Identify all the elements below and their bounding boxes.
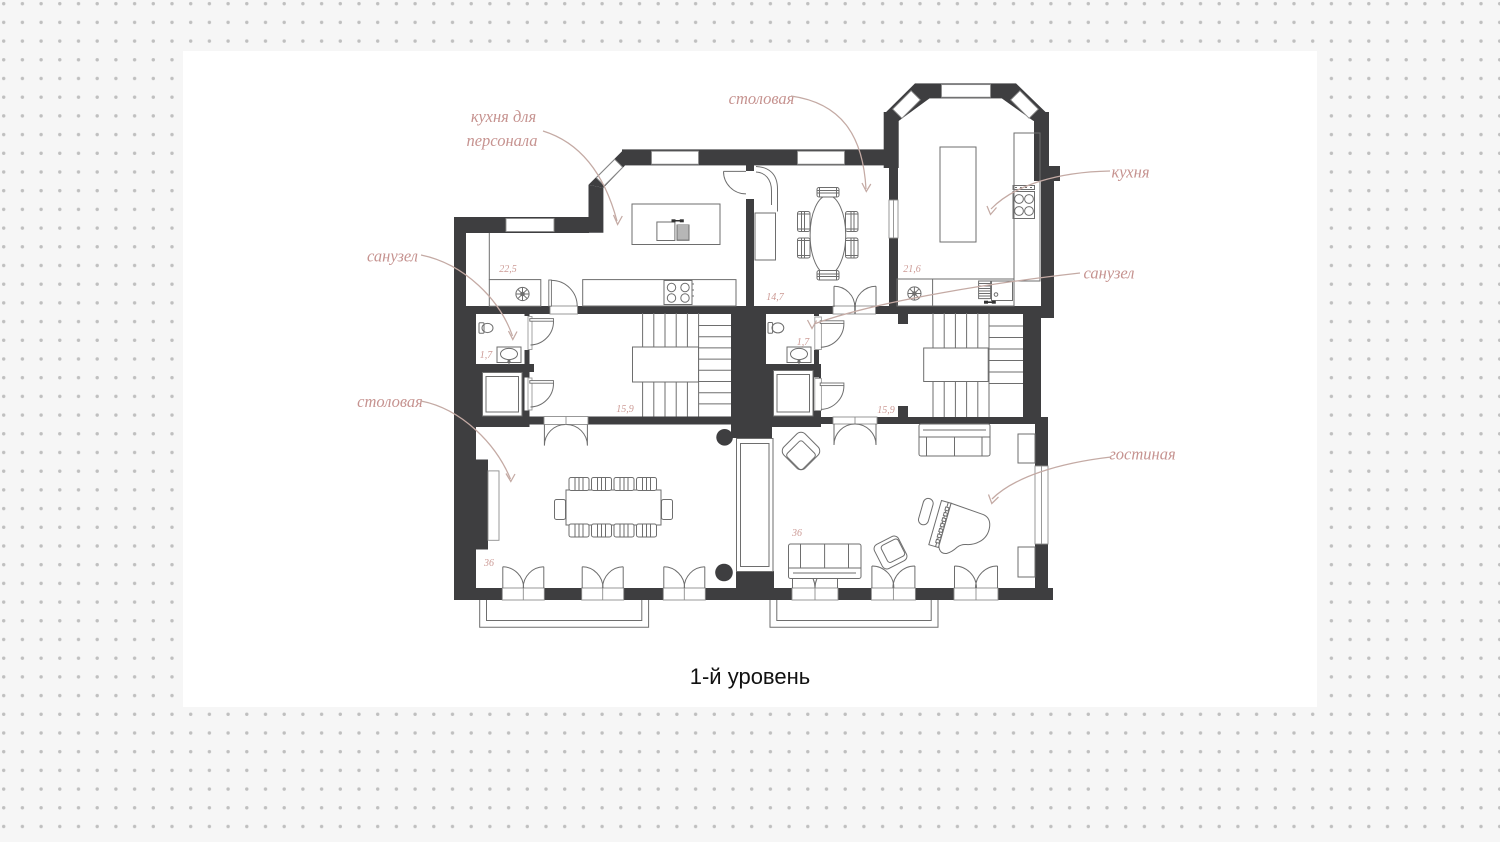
svg-text:персонала: персонала <box>466 131 537 150</box>
svg-text:36: 36 <box>791 528 802 539</box>
svg-text:15,9: 15,9 <box>616 404 634 415</box>
svg-text:1-й уровень: 1-й уровень <box>690 664 810 689</box>
svg-text:кухня для: кухня для <box>471 107 536 126</box>
svg-text:1,7: 1,7 <box>480 350 494 361</box>
svg-text:санузел: санузел <box>1084 264 1135 283</box>
svg-text:21,6: 21,6 <box>903 264 921 275</box>
svg-text:кухня: кухня <box>1111 163 1149 182</box>
svg-text:гостиная: гостиная <box>1109 445 1175 464</box>
svg-text:столовая: столовая <box>357 392 423 411</box>
svg-text:14,7: 14,7 <box>766 292 785 303</box>
svg-text:санузел: санузел <box>367 247 418 266</box>
svg-text:1,7: 1,7 <box>797 337 811 348</box>
svg-text:15,9: 15,9 <box>877 405 895 416</box>
svg-text:36: 36 <box>483 558 494 569</box>
svg-text:22,5: 22,5 <box>499 264 517 275</box>
svg-text:столовая: столовая <box>729 89 795 108</box>
